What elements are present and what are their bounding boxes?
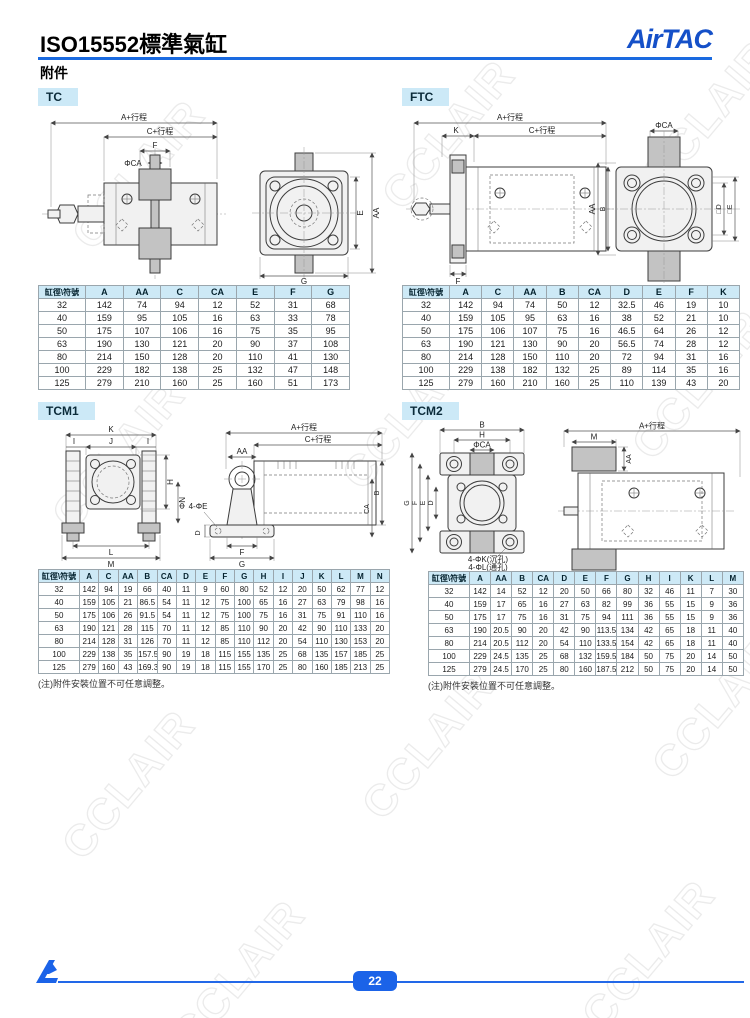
- dim-label-f: F: [240, 548, 245, 557]
- dimension-value-cell: 150: [514, 351, 546, 364]
- dimension-value-cell: 25: [578, 377, 610, 390]
- dimension-value-cell: 11: [176, 583, 195, 596]
- dimension-value-cell: 70: [157, 622, 176, 635]
- dimension-value-cell: 138: [482, 364, 514, 377]
- dimension-value-cell: 18: [680, 624, 701, 637]
- footer-logo-shape: [36, 960, 58, 983]
- header-row: 缸徑\符號ACAABCADEFGHIJKLMN: [39, 570, 390, 583]
- dimension-value-cell: 15: [680, 598, 701, 611]
- dimension-row: 802141501282011041130: [39, 351, 350, 364]
- dimension-value-cell: 95: [123, 312, 161, 325]
- dim-label-n: ΦN: [178, 497, 187, 509]
- dimension-value-cell: 159: [86, 312, 124, 325]
- dimension-value-cell: 65: [659, 637, 680, 650]
- dimension-value-cell: 33: [274, 312, 312, 325]
- dimension-value-cell: 50: [638, 650, 659, 663]
- dimension-value-cell: 72: [611, 351, 643, 364]
- dimension-value-cell: 60: [215, 583, 234, 596]
- dimension-value-cell: 7: [701, 585, 722, 598]
- dimension-value-cell: 214: [80, 635, 99, 648]
- dimension-row: 8021420.51122054110133.51544265181140: [429, 637, 744, 650]
- dimension-value-cell: 94: [161, 299, 199, 312]
- dimension-value-cell: 30: [722, 585, 743, 598]
- dimension-value-cell: 18: [196, 648, 215, 661]
- dimension-value-cell: 148: [312, 364, 350, 377]
- dim-label-g: G: [404, 500, 411, 505]
- bore-size-cell: 50: [39, 609, 80, 622]
- dimension-value-cell: 25: [370, 661, 389, 674]
- dimension-row: 3214214521220506680324611730: [429, 585, 744, 598]
- dimension-row: 802141281501102072943116: [403, 351, 740, 364]
- dimension-value-cell: 25: [370, 648, 389, 661]
- dimension-value-cell: 185: [351, 648, 370, 661]
- dimension-value-cell: 130: [312, 351, 350, 364]
- dim-label-e: E: [356, 210, 365, 215]
- bore-size-cell: 40: [39, 312, 86, 325]
- dim-label-aa: AA: [237, 447, 248, 456]
- dimension-value-cell: 31: [118, 635, 137, 648]
- dimension-value-cell: 10: [707, 312, 739, 325]
- dimension-value-cell: 16: [370, 596, 389, 609]
- dimension-value-cell: 12: [707, 325, 739, 338]
- dimension-row: 4015917651627638299365515936: [429, 598, 744, 611]
- column-header: A: [470, 572, 491, 585]
- dimension-value-cell: 20: [680, 650, 701, 663]
- dimension-value-cell: 25: [273, 648, 292, 661]
- footer-logo: [36, 960, 64, 989]
- column-header: J: [293, 570, 312, 583]
- dimension-value-cell: 54: [554, 637, 575, 650]
- column-header: CA: [157, 570, 176, 583]
- dimension-value-cell: 40: [157, 583, 176, 596]
- dimension-value-cell: 62: [331, 583, 350, 596]
- dimension-value-cell: 36: [722, 611, 743, 624]
- dimension-value-cell: 40: [722, 624, 743, 637]
- dimension-value-cell: 94: [482, 299, 514, 312]
- dimension-value-cell: 133: [351, 622, 370, 635]
- dim-label-ca: ΦCA: [124, 159, 142, 168]
- dimension-row: 32142749412523168: [39, 299, 350, 312]
- dimension-value-cell: 90: [512, 624, 533, 637]
- dimension-value-cell: 18: [680, 637, 701, 650]
- dim-label-g: G: [239, 560, 245, 569]
- bore-size-cell: 125: [429, 663, 470, 676]
- dimension-value-cell: 90: [312, 622, 331, 635]
- section-label-tcm1: TCM1: [38, 402, 95, 420]
- bore-size-cell: 32: [39, 583, 80, 596]
- dimension-value-cell: 16: [533, 611, 554, 624]
- dimension-value-cell: 43: [675, 377, 707, 390]
- header-row: 缸徑\符號AAABCADEFGHIKLM: [429, 572, 744, 585]
- dimension-value-cell: 154: [617, 637, 638, 650]
- column-header: A: [86, 286, 124, 299]
- dim-label-aa: AA: [372, 207, 381, 218]
- dimension-value-cell: 11: [701, 624, 722, 637]
- dimension-value-cell: 160: [482, 377, 514, 390]
- dimension-value-cell: 75: [236, 325, 274, 338]
- dimension-value-cell: 65: [254, 596, 273, 609]
- dimension-value-cell: 182: [514, 364, 546, 377]
- dimension-value-cell: 159.5: [596, 650, 617, 663]
- dimension-value-cell: 20: [273, 622, 292, 635]
- dim-label-i: I: [73, 437, 75, 446]
- corner-header: 缸徑\符號: [39, 570, 80, 583]
- dimension-value-cell: 106: [99, 609, 118, 622]
- dimension-value-cell: 11: [176, 635, 195, 648]
- dimension-value-cell: 175: [470, 611, 491, 624]
- dimension-value-cell: 75: [659, 650, 680, 663]
- dimension-value-cell: 90: [546, 338, 578, 351]
- header-rule: [38, 57, 712, 60]
- column-header: A: [450, 286, 482, 299]
- dimension-row: 8021412831126701112851101122054110130153…: [39, 635, 390, 648]
- watermark-text: CCLAIR: [53, 701, 206, 870]
- dimension-value-cell: 21: [118, 596, 137, 609]
- dimension-value-cell: 80: [554, 663, 575, 676]
- ftc-dimension-table: 缸徑\符號ACAABCADEFK321429474501232.54619104…: [402, 285, 740, 390]
- section-label-ftc: FTC: [402, 88, 449, 106]
- dimension-row: 6319020.590204290113.51344265181140: [429, 624, 744, 637]
- dimension-value-cell: 75: [546, 325, 578, 338]
- dimension-value-cell: 130: [331, 635, 350, 648]
- ftc-technical-drawing: A+行程 K C+行程: [402, 107, 747, 285]
- dimension-value-cell: 99: [617, 598, 638, 611]
- column-header: E: [575, 572, 596, 585]
- dimension-value-cell: 63: [312, 596, 331, 609]
- column-header: B: [138, 570, 157, 583]
- dim-label-h: H: [479, 431, 485, 440]
- dimension-row: 12527924.51702580160187.52125075201450: [429, 663, 744, 676]
- dimension-value-cell: 155: [235, 648, 254, 661]
- dimension-value-cell: 142: [80, 583, 99, 596]
- dimension-value-cell: 50: [722, 663, 743, 676]
- dimension-value-cell: 20: [533, 624, 554, 637]
- column-header: L: [331, 570, 350, 583]
- dimension-value-cell: 32: [638, 585, 659, 598]
- dimension-value-cell: 16: [273, 596, 292, 609]
- dimension-value-cell: 74: [123, 299, 161, 312]
- dimension-value-cell: 12: [196, 596, 215, 609]
- dimension-value-cell: 121: [482, 338, 514, 351]
- bore-size-cell: 80: [39, 351, 86, 364]
- dimension-value-cell: 159: [470, 598, 491, 611]
- dimension-value-cell: 100: [235, 596, 254, 609]
- dimension-value-cell: 94: [643, 351, 675, 364]
- dimension-value-cell: 26: [118, 609, 137, 622]
- tc-dimension-table: 缸徑\符號AAACCAEFG32142749412523168401599510…: [38, 285, 350, 390]
- dimension-value-cell: 20: [578, 351, 610, 364]
- dim-label-ca: CA: [364, 504, 371, 514]
- dimension-value-cell: 160: [312, 661, 331, 674]
- dimension-value-cell: 229: [80, 648, 99, 661]
- dim-label-aa: AA: [588, 203, 597, 214]
- dimension-row: 401599510516633378: [39, 312, 350, 325]
- dim-label-g: G: [301, 277, 307, 285]
- dim-label-aa: AA: [626, 454, 633, 464]
- dimension-value-cell: 74: [643, 338, 675, 351]
- column-header: I: [273, 570, 292, 583]
- dimension-value-cell: 56.5: [611, 338, 643, 351]
- dimension-value-cell: 36: [638, 598, 659, 611]
- bore-size-cell: 63: [39, 622, 80, 635]
- dimension-value-cell: 50: [546, 299, 578, 312]
- dimension-value-cell: 279: [450, 377, 482, 390]
- catalog-page: CCLAIR CCLAIR CCLAIR CCLAIR CCLAIR CCLAI…: [0, 0, 750, 1018]
- bore-size-cell: 63: [39, 338, 86, 351]
- dimension-value-cell: 110: [312, 635, 331, 648]
- dimension-value-cell: 74: [514, 299, 546, 312]
- dimension-value-cell: 31: [293, 609, 312, 622]
- dim-label-ca: ΦCA: [655, 121, 673, 130]
- dimension-value-cell: 75: [575, 611, 596, 624]
- dimension-value-cell: 16: [273, 609, 292, 622]
- dim-label-k: K: [453, 126, 459, 135]
- bore-size-cell: 125: [403, 377, 450, 390]
- dimension-value-cell: 9: [701, 611, 722, 624]
- dimension-value-cell: 108: [312, 338, 350, 351]
- dim-label-k: K: [108, 425, 114, 434]
- dimension-value-cell: 105: [482, 312, 514, 325]
- tcm1-front-view: K J I I: [62, 425, 187, 569]
- dimension-value-cell: 12: [370, 583, 389, 596]
- dimension-value-cell: 66: [596, 585, 617, 598]
- column-header: F: [274, 286, 312, 299]
- dimension-value-cell: 18: [196, 661, 215, 674]
- dimension-value-cell: 12: [196, 635, 215, 648]
- dimension-value-cell: 36: [638, 611, 659, 624]
- dimension-value-cell: 35: [118, 648, 137, 661]
- dimension-value-cell: 46.5: [611, 325, 643, 338]
- dimension-value-cell: 51: [274, 377, 312, 390]
- dimension-row: 63190121130902056.5742812: [403, 338, 740, 351]
- column-header: G: [312, 286, 350, 299]
- column-header: F: [215, 570, 234, 583]
- column-header: F: [596, 572, 617, 585]
- dimension-value-cell: 52: [236, 299, 274, 312]
- dimension-value-cell: 24.5: [491, 650, 512, 663]
- dimension-value-cell: 157.5: [138, 648, 157, 661]
- bore-size-cell: 125: [39, 377, 86, 390]
- dimension-value-cell: 16: [370, 609, 389, 622]
- watermark-text: CCLAIR: [163, 891, 316, 1018]
- dimension-value-cell: 175: [86, 325, 124, 338]
- dimension-value-cell: 210: [514, 377, 546, 390]
- dimension-value-cell: 132: [546, 364, 578, 377]
- dimension-value-cell: 150: [123, 351, 161, 364]
- dimension-value-cell: 31: [675, 351, 707, 364]
- dimension-value-cell: 121: [161, 338, 199, 351]
- dimension-value-cell: 229: [470, 650, 491, 663]
- tcm2-note: (注)附件安裝位置不可任意調整。: [428, 679, 747, 692]
- airtac-logo: AirTAC: [627, 24, 712, 55]
- dimension-value-cell: 110: [236, 351, 274, 364]
- dimension-value-cell: 52: [643, 312, 675, 325]
- dimension-value-cell: 114: [643, 364, 675, 377]
- dimension-value-cell: 128: [482, 351, 514, 364]
- dimension-value-cell: 64: [643, 325, 675, 338]
- dimension-value-cell: 20.5: [491, 624, 512, 637]
- column-header: B: [546, 286, 578, 299]
- dimension-value-cell: 212: [617, 663, 638, 676]
- column-header: B: [512, 572, 533, 585]
- dimension-value-cell: 25: [273, 661, 292, 674]
- dimension-value-cell: 90: [575, 624, 596, 637]
- dimension-value-cell: 11: [680, 585, 701, 598]
- dimension-value-cell: 160: [161, 377, 199, 390]
- dimension-value-cell: 113.5: [596, 624, 617, 637]
- dimension-value-cell: 138: [161, 364, 199, 377]
- dimension-value-cell: 20: [533, 637, 554, 650]
- dimension-value-cell: 75: [215, 609, 234, 622]
- dimension-value-cell: 47: [274, 364, 312, 377]
- column-header: E: [236, 286, 274, 299]
- dimension-value-cell: 187.5: [596, 663, 617, 676]
- tc-side-view: [42, 149, 226, 279]
- dimension-value-cell: 132: [236, 364, 274, 377]
- bore-size-cell: 32: [403, 299, 450, 312]
- dimension-value-cell: 37: [274, 338, 312, 351]
- dimension-value-cell: 63: [236, 312, 274, 325]
- dimension-value-cell: 68: [554, 650, 575, 663]
- column-header: AA: [123, 286, 161, 299]
- dimension-value-cell: 14: [701, 663, 722, 676]
- dimension-value-cell: 31: [274, 299, 312, 312]
- tc-technical-drawing: A+行程 C+行程 F ΦCA: [38, 107, 388, 285]
- dimension-value-cell: 115: [215, 648, 234, 661]
- dimension-value-cell: 63: [546, 312, 578, 325]
- dimension-value-cell: 11: [176, 609, 195, 622]
- dimension-value-cell: 25: [578, 364, 610, 377]
- dimension-value-cell: 12: [199, 299, 237, 312]
- dimension-value-cell: 12: [196, 622, 215, 635]
- tcm2-front-view: B H ΦCA: [404, 421, 524, 571]
- bore-size-cell: 63: [403, 338, 450, 351]
- tcm1-side-view: A+行程 C+行程 AA: [189, 422, 386, 569]
- dimension-row: 10022924.51352568132159.51845075201450: [429, 650, 744, 663]
- bore-size-cell: 63: [429, 624, 470, 637]
- dimension-value-cell: 14: [701, 650, 722, 663]
- dim-label-a: A+行程: [497, 112, 523, 122]
- watermark-text: CCLAIR: [573, 871, 726, 1018]
- dimension-value-cell: 160: [575, 663, 596, 676]
- dimension-value-cell: 27: [293, 596, 312, 609]
- column-header: K: [707, 286, 739, 299]
- column-header: E: [643, 286, 675, 299]
- dimension-value-cell: 25: [533, 663, 554, 676]
- bore-size-cell: 40: [429, 598, 470, 611]
- dimension-value-cell: 27: [554, 598, 575, 611]
- column-header: D: [611, 286, 643, 299]
- dim-label-4l: 4-ΦL(通孔): [468, 562, 508, 571]
- dimension-value-cell: 77: [351, 583, 370, 596]
- dimension-value-cell: 50: [638, 663, 659, 676]
- dimension-value-cell: 95: [514, 312, 546, 325]
- dimension-value-cell: 20: [370, 622, 389, 635]
- dimension-value-cell: 135: [512, 650, 533, 663]
- column-header: CA: [199, 286, 237, 299]
- dimension-value-cell: 95: [312, 325, 350, 338]
- dimension-value-cell: 91.5: [138, 609, 157, 622]
- dimension-value-cell: 128: [161, 351, 199, 364]
- dimension-value-cell: 135: [254, 648, 273, 661]
- section-tc: TC A+行程 C+行程 F ΦCA: [38, 88, 388, 390]
- dimension-value-cell: 190: [450, 338, 482, 351]
- dimension-value-cell: 40: [722, 637, 743, 650]
- dim-label-a: A+行程: [639, 421, 665, 431]
- dimension-value-cell: 19: [176, 648, 195, 661]
- dimension-value-cell: 160: [236, 377, 274, 390]
- dimension-value-cell: 16: [578, 312, 610, 325]
- column-header: K: [680, 572, 701, 585]
- dimension-value-cell: 20: [680, 663, 701, 676]
- bore-size-cell: 50: [403, 325, 450, 338]
- dimension-value-cell: 229: [450, 364, 482, 377]
- column-header: K: [312, 570, 331, 583]
- dimension-value-cell: 132: [575, 650, 596, 663]
- dimension-value-cell: 82: [596, 598, 617, 611]
- dimension-value-cell: 160: [546, 377, 578, 390]
- dimension-value-cell: 20: [554, 585, 575, 598]
- ftc-side-view: F: [406, 155, 614, 285]
- dimension-value-cell: 36: [722, 598, 743, 611]
- dimension-row: 1002291821382513247148: [39, 364, 350, 377]
- dimension-value-cell: 135: [312, 648, 331, 661]
- dim-label-d: D: [195, 530, 202, 535]
- tcm2-technical-drawing: B H ΦCA: [402, 421, 747, 571]
- dim-label-a: A+行程: [291, 422, 317, 432]
- dim-label-l: L: [109, 548, 114, 557]
- dimension-value-cell: 25: [199, 377, 237, 390]
- dim-label-a: A+行程: [121, 112, 147, 122]
- dimension-value-cell: 110: [575, 637, 596, 650]
- dimension-value-cell: 190: [470, 624, 491, 637]
- dim-label-c: C+行程: [147, 126, 173, 136]
- dimension-row: 12527916043169.3901918115155170258016018…: [39, 661, 390, 674]
- bore-size-cell: 125: [39, 661, 80, 674]
- tcm2-dimension-table: 缸徑\符號AAABCADEFGHIKLM32142145212205066803…: [428, 571, 744, 676]
- dimension-value-cell: 80: [617, 585, 638, 598]
- column-header: M: [351, 570, 370, 583]
- dimension-value-cell: 43: [118, 661, 137, 674]
- column-header: CA: [533, 572, 554, 585]
- dimension-value-cell: 12: [533, 585, 554, 598]
- dimension-value-cell: 173: [312, 377, 350, 390]
- dimension-row: 10022913835157.5901918115155135256813515…: [39, 648, 390, 661]
- dimension-value-cell: 90: [236, 338, 274, 351]
- dimension-value-cell: 133.5: [596, 637, 617, 650]
- dimension-value-cell: 12: [578, 299, 610, 312]
- dimension-value-cell: 80: [293, 661, 312, 674]
- page-number-badge: 22: [353, 971, 397, 991]
- dimension-value-cell: 20: [199, 338, 237, 351]
- dimension-value-cell: 170: [512, 663, 533, 676]
- dim-label-d: □D: [716, 204, 723, 213]
- dimension-row: 50175106107751646.5642612: [403, 325, 740, 338]
- dimension-row: 63190130121209037108: [39, 338, 350, 351]
- dimension-value-cell: 16: [707, 351, 739, 364]
- column-header: E: [196, 570, 215, 583]
- dimension-value-cell: 68: [293, 648, 312, 661]
- dimension-value-cell: 279: [86, 377, 124, 390]
- dim-label-m: M: [591, 433, 598, 442]
- dimension-value-cell: 50: [575, 585, 596, 598]
- dimension-value-cell: 10: [707, 299, 739, 312]
- dimension-value-cell: 80: [235, 583, 254, 596]
- dimension-value-cell: 106: [482, 325, 514, 338]
- dimension-value-cell: 11: [701, 637, 722, 650]
- dimension-row: 3214294196640119608052122050627712: [39, 583, 390, 596]
- bore-size-cell: 100: [39, 648, 80, 661]
